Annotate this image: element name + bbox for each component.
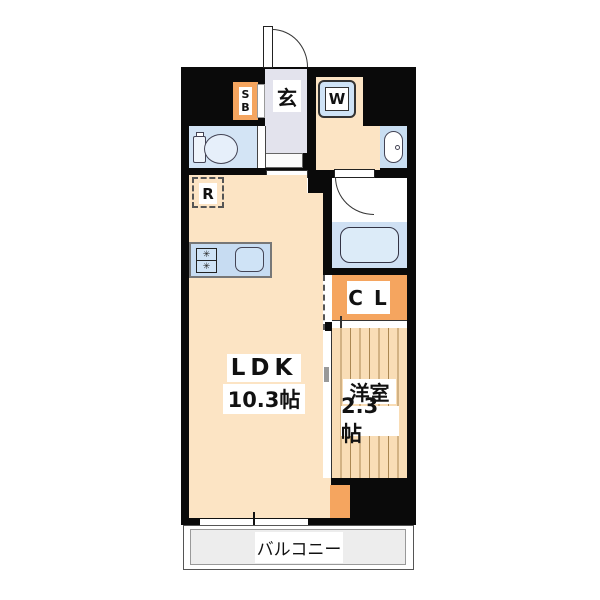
ldk-floor bbox=[189, 175, 307, 518]
shoe-box-label-b: B bbox=[241, 101, 249, 114]
wash-basin bbox=[380, 126, 407, 168]
refrigerator-label: R bbox=[202, 185, 214, 203]
shoe-box-label-s: S bbox=[242, 88, 250, 101]
refrigerator-space: R bbox=[192, 177, 224, 208]
door-stop bbox=[325, 322, 332, 331]
window-tick bbox=[253, 512, 255, 525]
entrance-label: 玄 bbox=[273, 80, 301, 112]
sliding-door-track bbox=[322, 330, 332, 478]
toilet-room bbox=[189, 126, 257, 168]
ldk-floor-2 bbox=[307, 193, 323, 518]
western-room-floor: 洋室 2.3帖 bbox=[332, 328, 407, 478]
entrance-step bbox=[261, 153, 303, 168]
burner-icon: ✳ bbox=[203, 250, 211, 260]
ldk-size: 10.3帖 bbox=[228, 384, 301, 414]
ldk-label-block: LDK 10.3帖 bbox=[222, 354, 306, 414]
basin-faucet-icon bbox=[395, 145, 400, 150]
washing-machine: W bbox=[318, 80, 356, 118]
entrance-door-swing-icon bbox=[272, 29, 308, 67]
shoe-box: S B bbox=[233, 82, 258, 120]
washing-machine-label: W bbox=[329, 90, 346, 108]
shoe-box-door bbox=[257, 84, 265, 118]
burner-icon: ✳ bbox=[203, 262, 211, 272]
floor-plan: S B 玄 W C L bbox=[0, 0, 600, 600]
toilet-door bbox=[257, 126, 266, 168]
stove-icon: ✳ ✳ bbox=[196, 248, 217, 273]
sliding-door-handle bbox=[324, 367, 329, 382]
kitchen-counter: ✳ ✳ bbox=[189, 242, 272, 278]
closet-label: C L bbox=[348, 286, 388, 310]
balcony: バルコニー bbox=[183, 525, 414, 570]
sink-icon bbox=[235, 247, 264, 272]
toilet-icon bbox=[193, 129, 245, 165]
balcony-label: バルコニー bbox=[257, 535, 342, 560]
ldk-label: LDK bbox=[231, 355, 298, 381]
basin-bowl-icon bbox=[384, 131, 403, 163]
pipe-space bbox=[330, 485, 350, 518]
closet: C L bbox=[332, 275, 407, 320]
bathtub-area bbox=[332, 222, 407, 268]
bathtub-icon bbox=[340, 227, 399, 263]
washroom-floor-2 bbox=[345, 126, 380, 170]
western-room-size: 2.3帖 bbox=[341, 394, 399, 448]
